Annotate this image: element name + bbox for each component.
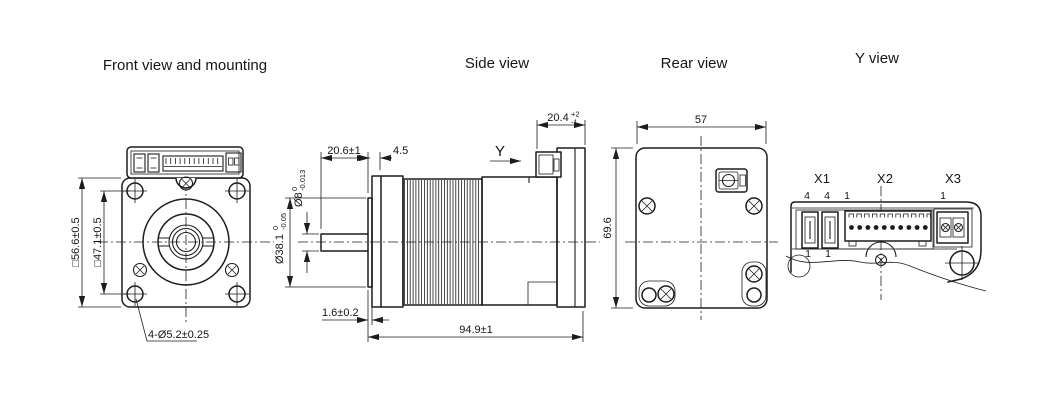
rear-view: 57 69.6 [602,114,778,320]
rear-view-title: Rear view [661,55,728,72]
front-view-title: Front view and mounting [103,57,267,74]
side-dim-pilot-dia-lo: -0.05 [279,213,288,230]
side-dim-shaft-dia-lo: -0.013 [298,170,307,191]
y-label-x2: X2 [877,171,893,186]
front-dim-bolt-text: □47.1±0.5 [92,217,104,266]
y-connector-x2 [845,211,931,246]
front-top-screw [176,177,196,190]
side-shaft-outline [321,234,368,251]
side-dim-shaft-dia-text: Ø8 [293,192,305,207]
side-view-arrow-label: Y [495,143,505,160]
rear-dim-height-text: 69.6 [602,217,614,238]
y-connector-x3 [934,209,972,247]
front-view: □56.6±0.5 □47.1±0.5 4-Ø5.2±0.25 [70,147,274,341]
y-pin-x1a-bottom: 1 [805,248,811,260]
side-dim-pilot-dia-text: Ø38.1 [274,234,286,264]
engineering-drawing: Front view and mounting Side view Rear v… [0,0,1050,411]
side-dim-total-len: 94.9±1 [368,311,583,342]
front-dim-bolt: □47.1±0.5 [92,191,130,294]
side-dim-conn-w-text: 20.4 [547,112,568,124]
side-dim-total-len-text: 94.9±1 [459,324,493,336]
y-pin-x2-top: 1 [844,190,850,202]
side-view: Y 20.6±1 4.5 20.4 +2 -1 [271,110,600,343]
side-dim-conn-w: 20.4 +2 -1 [537,110,585,150]
y-connector-x1 [802,212,838,248]
y-label-x1: X1 [814,171,830,186]
side-flange-plates [372,176,403,307]
side-dim-shaft-dia: Ø8 0 -0.013 [290,170,319,273]
y-pin-x3-top: 1 [940,190,946,202]
side-dim-pilot-dia: Ø38.1 0 -0.05 [271,198,366,287]
front-dim-holes-text: 4-Ø5.2±0.25 [148,329,209,341]
side-dim-shaft-len-text: 20.6±1 [327,145,361,157]
rear-dim-width: 57 [637,114,766,144]
side-motor-body [482,177,557,305]
side-view-arrow: Y [490,143,521,161]
y-view-title: Y view [855,50,899,67]
rear-dim-height: 69.6 [602,148,633,308]
rear-switch [716,169,747,192]
side-dim-flange-thk-text: 4.5 [393,145,408,157]
y-label-x3: X3 [945,171,961,186]
side-view-title: Side view [465,55,529,72]
front-dim-outer-text: □56.6±0.5 [70,217,82,266]
side-top-connector [536,152,561,177]
side-dim-conn-w-lo: -1 [571,118,578,127]
side-dim-pilot-len-text: 1.6±0.2 [322,307,359,319]
front-connector-strip [127,147,243,178]
rear-corner-tabs [639,262,766,306]
y-pin-x1b-bottom: 1 [825,248,831,260]
rear-screws [639,198,762,302]
drawing-svg: Front view and mounting Side view Rear v… [0,0,1050,411]
side-dim-flange-thk: 4.5 [358,145,408,170]
rear-dim-width-text: 57 [695,114,707,126]
y-pin-x1a-top: 4 [804,190,810,202]
side-dim-pilot-len: 1.6±0.2 [322,290,389,342]
y-view: X1 X2 X3 4 4 1 1 1 1 [786,171,986,300]
y-pin-x1b-top: 4 [824,190,830,202]
front-dim-holes: 4-Ø5.2±0.25 [136,299,209,341]
